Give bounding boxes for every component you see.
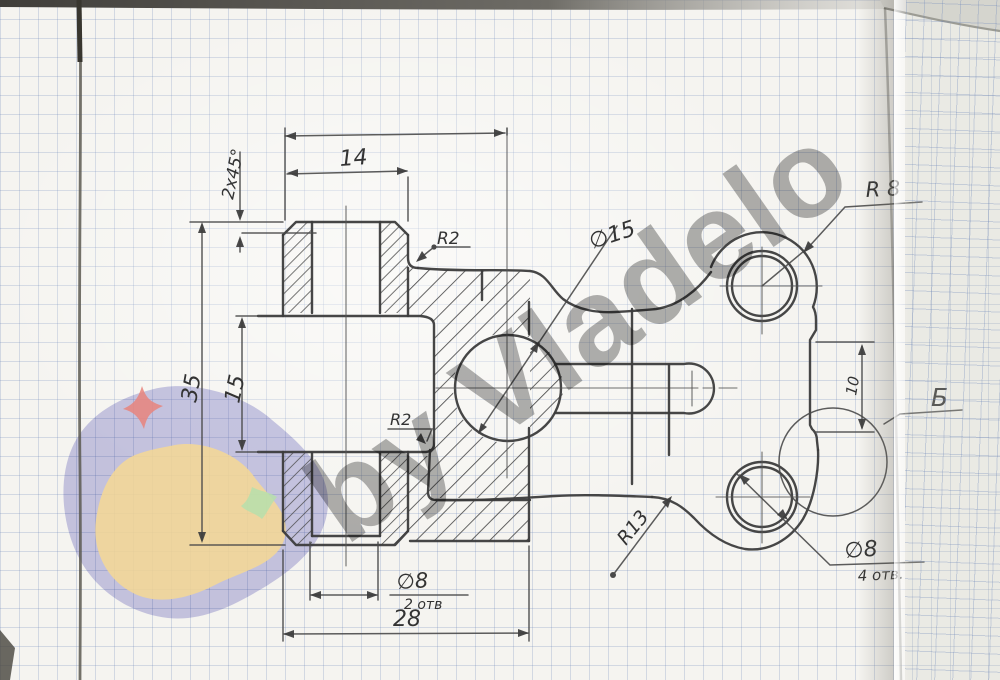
dim-label-top-width: 14 — [339, 145, 369, 172]
radius-label-top-fillet: R2 — [437, 229, 460, 249]
radius-label-groove-fillet: R2 — [390, 410, 411, 429]
page-top-edge — [0, 0, 884, 10]
dim-label-overall-width: 28 — [393, 607, 421, 632]
technical-drawing: 14 2x45° 35 15 R2 R2 ∅15 R 8 10 Б R13 ∅8… — [0, 0, 1000, 680]
radius-label-plate: R13 — [613, 506, 654, 549]
dim-label-overall-height: 35 — [177, 372, 206, 404]
sketch-page: 14 2x45° 35 15 R2 R2 ∅15 R 8 10 Б R13 ∅8… — [0, 0, 1000, 680]
dim-label-groove-height: 15 — [220, 373, 250, 406]
page-curl-region — [905, 0, 1000, 680]
dim-label-center-hole: ∅15 — [586, 216, 639, 254]
page-left-edge-top — [79, 0, 80, 62]
dim-label-chamfer: 2x45° — [218, 147, 248, 201]
page-corner-shadow — [0, 630, 15, 680]
page-left-edge — [79, 0, 80, 680]
dim-label-hub-hole: ∅8 — [396, 568, 429, 594]
page-fold-shadow — [858, 0, 894, 680]
